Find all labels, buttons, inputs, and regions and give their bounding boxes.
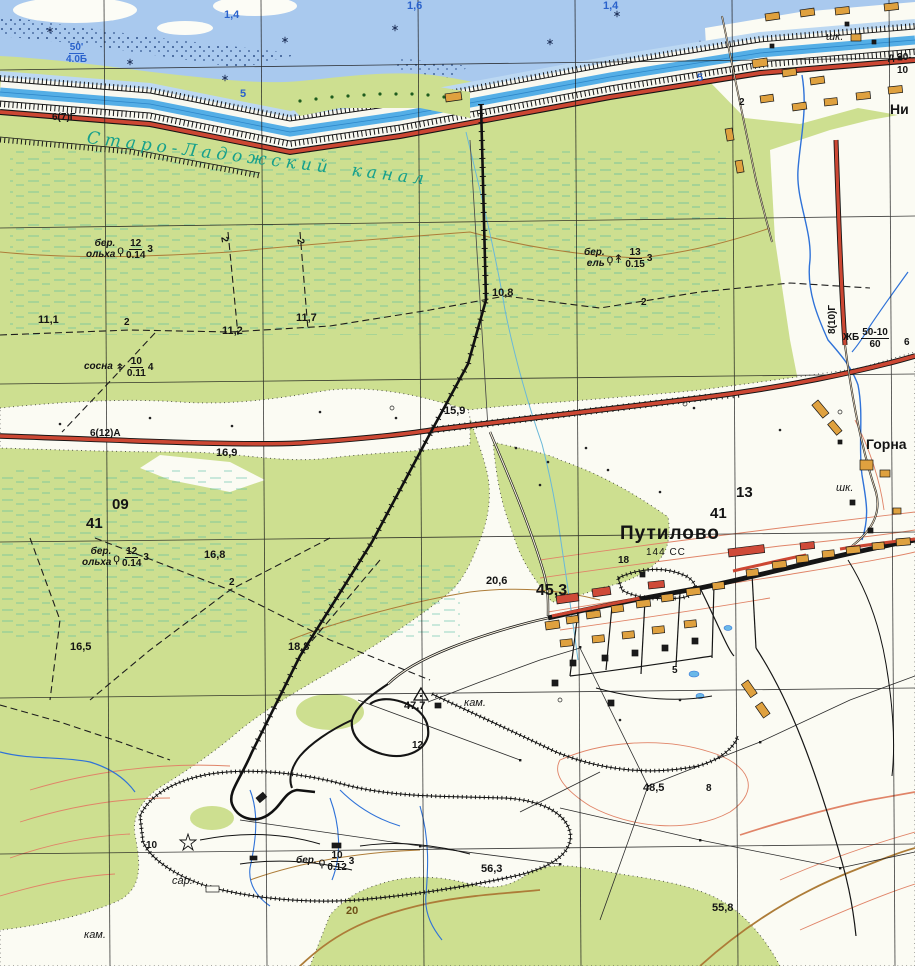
elev-47-7: 47,7	[404, 701, 425, 712]
contour-20: 20	[346, 906, 358, 917]
settlement-putilovo: Путилово	[620, 524, 720, 543]
ditch-2-b: 2	[218, 236, 229, 243]
school-gornaya: шк.	[836, 483, 853, 494]
grid-41-e: 41	[710, 506, 727, 521]
canal-spec: 50'4.0Б	[66, 42, 87, 65]
road-spec-left: 6(7)Г	[52, 113, 75, 123]
elev-10-8: 10,8	[492, 288, 513, 299]
elev-16-9: 16,9	[216, 448, 237, 459]
road-width-6: 6	[904, 338, 910, 348]
canal-depth-5-a: 5	[240, 89, 246, 100]
ditch-2-e: 2	[229, 578, 235, 588]
forest-birch-sw: бер.ϙ100.123	[296, 850, 354, 873]
mark-8: 8	[706, 784, 712, 794]
elev-56-3: 56,3	[481, 864, 502, 875]
bridge-spec-zhb: ЖБ50-1060	[843, 327, 889, 350]
road-spec-right: 8(10)Г	[828, 305, 838, 334]
forest-pine: сосна↟100.114	[84, 356, 153, 379]
deciduous-tree-icon: ϙ	[113, 552, 120, 564]
quarry-note-sw: кам.	[84, 930, 106, 941]
road-spec-main: 6(12)А	[90, 429, 121, 439]
bridge-spec-d20: д 20-	[888, 53, 912, 63]
forest-birch-spruce: бер.ельϙ↟130.153	[584, 247, 652, 270]
elev-20-6: 20,6	[486, 576, 507, 587]
settlement-ni: Ни	[890, 102, 909, 116]
settlement-gornaya: Горна	[866, 437, 907, 451]
quarry-depth-12: 12	[412, 741, 423, 751]
canal-depth-5-b: 5	[697, 73, 703, 84]
forest-birch-alder-s: бер.ольхаϙ120.143	[82, 546, 149, 569]
mark-5: 5	[672, 666, 678, 676]
deciduous-tree-icon: ϙ	[319, 856, 326, 868]
depth-1-4-b: 1,4	[603, 1, 618, 12]
map-labels-layer: Старо-Ладожский канал1,61,41,45550'4.0Б6…	[0, 0, 915, 966]
quarry-note-c: кам.	[464, 698, 486, 709]
grid-09: 09	[112, 497, 129, 512]
elev-55-8: 55,8	[712, 903, 733, 914]
topographic-map: Старо-Ладожский канал1,61,41,45550'4.0Б6…	[0, 0, 915, 966]
canal-name: Старо-Ладожский канал	[86, 130, 430, 189]
deciduous-tree-icon: ϙ	[117, 244, 124, 256]
conifer-tree-icon: ↟	[115, 362, 125, 374]
quarry-depth-10: 10	[146, 841, 157, 851]
mixed-forest-tree-icon: ϙ↟	[607, 253, 624, 265]
elev-11-1: 11,1	[38, 315, 59, 326]
school-top: шк.	[826, 32, 843, 43]
elev-15-9: 15,9	[444, 406, 465, 417]
putilovo-population: 144 СС	[646, 548, 686, 558]
ditch-2-f: 2	[739, 98, 745, 108]
elev-16-8: 16,8	[204, 550, 225, 561]
elev-16-5: 16,5	[70, 642, 91, 653]
elev-11-2: 11,2	[222, 326, 243, 337]
depth-1-6: 1,6	[407, 1, 422, 12]
mark-18: 18	[618, 556, 629, 566]
elev-11-7: 11,7	[296, 313, 317, 324]
elev-45-3: 45,3	[536, 583, 567, 599]
bridge-spec-d20-b: 10	[897, 66, 908, 76]
grid-41-w: 41	[86, 516, 103, 531]
grid-13: 13	[736, 485, 753, 500]
ditch-2-c: 2	[294, 238, 305, 245]
elev-48-5: 48,5	[643, 783, 664, 794]
ditch-2-d: 2	[641, 298, 647, 308]
ditch-2-a: 2	[124, 318, 130, 328]
elev-18-8: 18,8	[288, 642, 309, 653]
depth-1-4-a: 1,4	[224, 10, 239, 21]
forest-birch-alder-n: бер.ольхаϙ120.143	[86, 238, 153, 261]
barn-note: сар.	[172, 876, 193, 887]
